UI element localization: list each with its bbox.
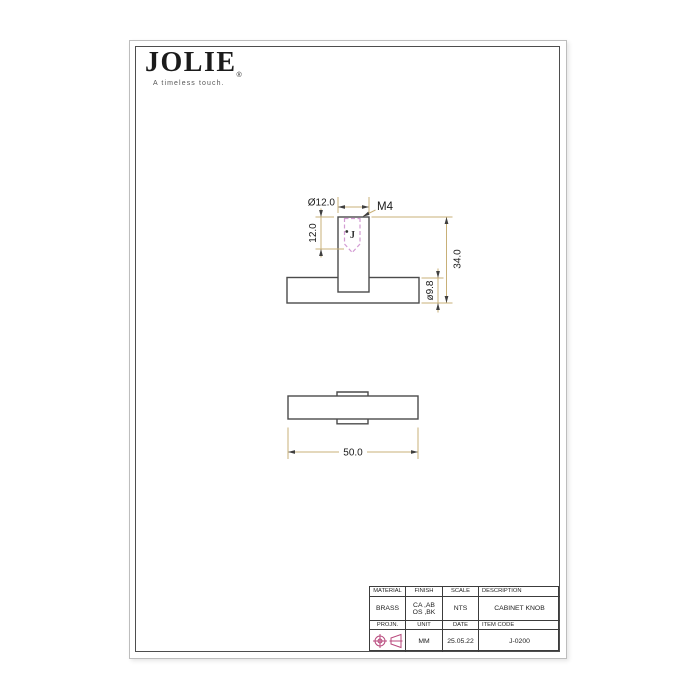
dim-base-diameter: 50.0 xyxy=(288,428,418,460)
dim-base-diameter-label: 50.0 xyxy=(343,448,363,459)
dim-base-thickness-label: ø9.8 xyxy=(425,280,436,300)
third-angle-projection-icon xyxy=(372,631,404,651)
header-unit: UNIT xyxy=(405,620,442,629)
header-description: DESCRIPTION xyxy=(478,587,560,596)
dim-thread-depth-label: 12.0 xyxy=(308,223,319,243)
value-finish: CA ,AB OS ,BK xyxy=(405,596,442,620)
dim-thread-callout-label: M4 xyxy=(377,201,394,213)
technical-drawing: J Ø12.0 M4 12.0 xyxy=(0,0,700,700)
header-material: MATERIAL xyxy=(370,587,405,596)
header-date: DATE xyxy=(442,620,478,629)
face-outline xyxy=(288,396,418,419)
header-finish: FINISH xyxy=(405,587,442,596)
dim-thread-callout: M4 xyxy=(363,201,394,217)
value-finish-line2: OS ,BK xyxy=(413,609,436,616)
value-scale: NTS xyxy=(442,596,478,620)
dim-stem-diameter-label: Ø12.0 xyxy=(308,198,336,209)
dim-stem-diameter: Ø12.0 xyxy=(308,197,369,213)
value-projection-symbol xyxy=(370,629,405,652)
header-item-code: ITEM CODE xyxy=(478,620,560,629)
face-bottom-tab-outline xyxy=(337,419,368,424)
knob-stem-outline xyxy=(338,217,369,292)
dim-total-height-label: 34.0 xyxy=(453,249,464,269)
header-projection: PROJN. xyxy=(370,620,405,629)
dim-base-thickness: ø9.8 xyxy=(422,269,444,313)
face-view xyxy=(288,392,418,424)
value-material: BRASS xyxy=(370,596,405,620)
title-block: MATERIAL FINISH SCALE DESCRIPTION BRASS … xyxy=(369,586,559,651)
value-finish-line1: CA ,AB xyxy=(413,602,435,609)
value-description: CABINET KNOB xyxy=(478,596,560,620)
value-unit: MM xyxy=(405,629,442,652)
value-date: 25.05.22 xyxy=(442,629,478,652)
value-item-code: J-0200 xyxy=(478,629,560,652)
section-view: J xyxy=(287,217,419,303)
drawing-page: JOLIE® A timeless touch. J xyxy=(0,0,700,700)
cursor-artifact-glyph: J xyxy=(350,230,355,241)
header-scale: SCALE xyxy=(442,587,478,596)
